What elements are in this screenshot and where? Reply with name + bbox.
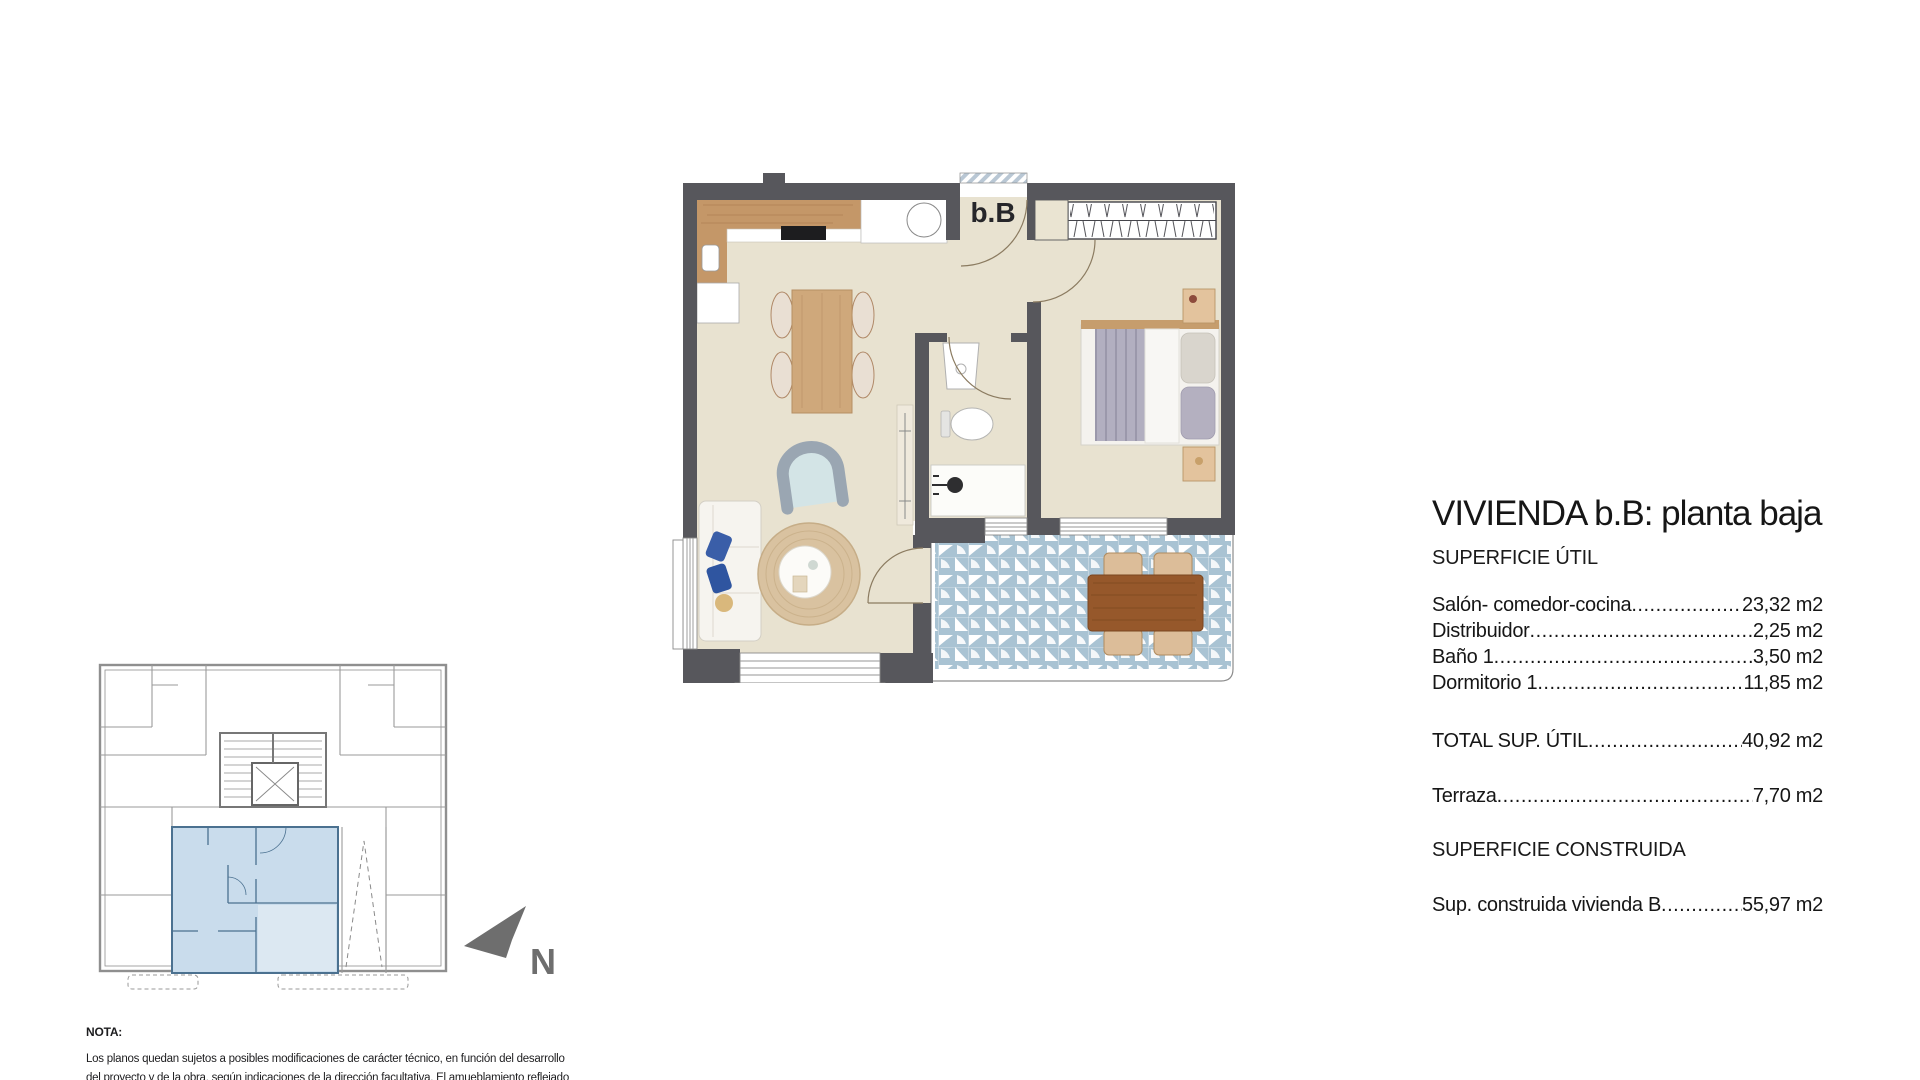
- leader-dots: ........................................…: [1497, 785, 1753, 808]
- plan-sheet: b.B: [0, 0, 1920, 1080]
- kitchen-sink-round: [907, 203, 941, 237]
- leader-dots: ........................................…: [1588, 730, 1742, 753]
- leader-dots: ........................................…: [1537, 672, 1743, 695]
- toilet: [941, 408, 993, 440]
- leader-dots: ........................................…: [1494, 646, 1753, 669]
- area-row-label: TOTAL SUP. ÚTIL: [1432, 730, 1588, 753]
- bed: [1081, 320, 1219, 445]
- kitchen-sink-small: [702, 245, 719, 271]
- area-row-salon: Salón- comedor-cocina ..................…: [1432, 594, 1823, 620]
- terraza-row: Terraza ................................…: [1432, 785, 1823, 811]
- area-row-label: Terraza: [1432, 785, 1497, 808]
- unit-label: b.B: [970, 197, 1015, 228]
- entry-canopy: [960, 173, 1027, 183]
- sup-construida-row: Sup. construida vivienda B .............…: [1432, 894, 1823, 920]
- bathroom-sink: [943, 343, 979, 389]
- area-row-value: 7,70 m2: [1753, 785, 1823, 808]
- cooktop-icon: [781, 226, 826, 240]
- superficie-util-heading: SUPERFICIE ÚTIL: [1432, 547, 1598, 570]
- stair-core: [220, 733, 326, 807]
- area-row-dormitorio: Dormitorio 1 ...........................…: [1432, 672, 1823, 698]
- fridge: [697, 283, 739, 323]
- area-row-value: 40,92 m2: [1742, 730, 1823, 753]
- entry-niche: [1035, 200, 1068, 240]
- area-row-label: Baño 1: [1432, 646, 1494, 669]
- sofa: [699, 501, 761, 641]
- north-label: N: [530, 941, 556, 980]
- area-row-label: Distribuidor: [1432, 620, 1530, 643]
- keyplan-highlighted-unit: [172, 827, 338, 973]
- north-arrow: N: [460, 896, 572, 980]
- area-row-value: 11,85 m2: [1743, 672, 1823, 695]
- note-heading: NOTA:: [86, 1025, 122, 1039]
- total-sup-util-row: TOTAL SUP. ÚTIL ........................…: [1432, 730, 1823, 756]
- wardrobe: [1068, 202, 1216, 239]
- leader-dots: ........................................…: [1530, 620, 1753, 643]
- console-table: [897, 405, 913, 525]
- area-row-label: Dormitorio 1: [1432, 672, 1537, 695]
- superficie-construida-heading: SUPERFICIE CONSTRUIDA: [1432, 839, 1686, 862]
- shower: [931, 465, 1025, 516]
- area-row-bano: Baño 1 .................................…: [1432, 646, 1823, 672]
- area-row-value: 3,50 m2: [1753, 646, 1823, 669]
- armchair: [779, 443, 843, 508]
- area-row-label: Salón- comedor-cocina: [1432, 594, 1631, 617]
- leader-dots: ........................................…: [1661, 894, 1742, 917]
- area-row-value: 55,97 m2: [1742, 894, 1823, 917]
- keyplan-stoops: [128, 975, 408, 989]
- key-plan: [88, 655, 456, 1000]
- area-row-label: Sup. construida vivienda B: [1432, 894, 1661, 917]
- leader-dots: ........................................…: [1631, 594, 1742, 617]
- main-floor-plan: b.B: [671, 171, 1235, 683]
- note-line: del proyecto y de la obra, según indicac…: [86, 1072, 569, 1080]
- keyplan-dashed-stairs: [346, 841, 382, 967]
- rug: [758, 523, 860, 625]
- area-row-distribuidor: Distribuidor ...........................…: [1432, 620, 1823, 646]
- area-row-value: 2,25 m2: [1753, 620, 1823, 643]
- note-line: Los planos quedan sujetos a posibles mod…: [86, 1053, 565, 1065]
- north-arrow-icon: [464, 906, 526, 958]
- area-row-value: 23,32 m2: [1742, 594, 1823, 617]
- page-title: VIVIENDA b.B: planta baja: [1432, 494, 1821, 534]
